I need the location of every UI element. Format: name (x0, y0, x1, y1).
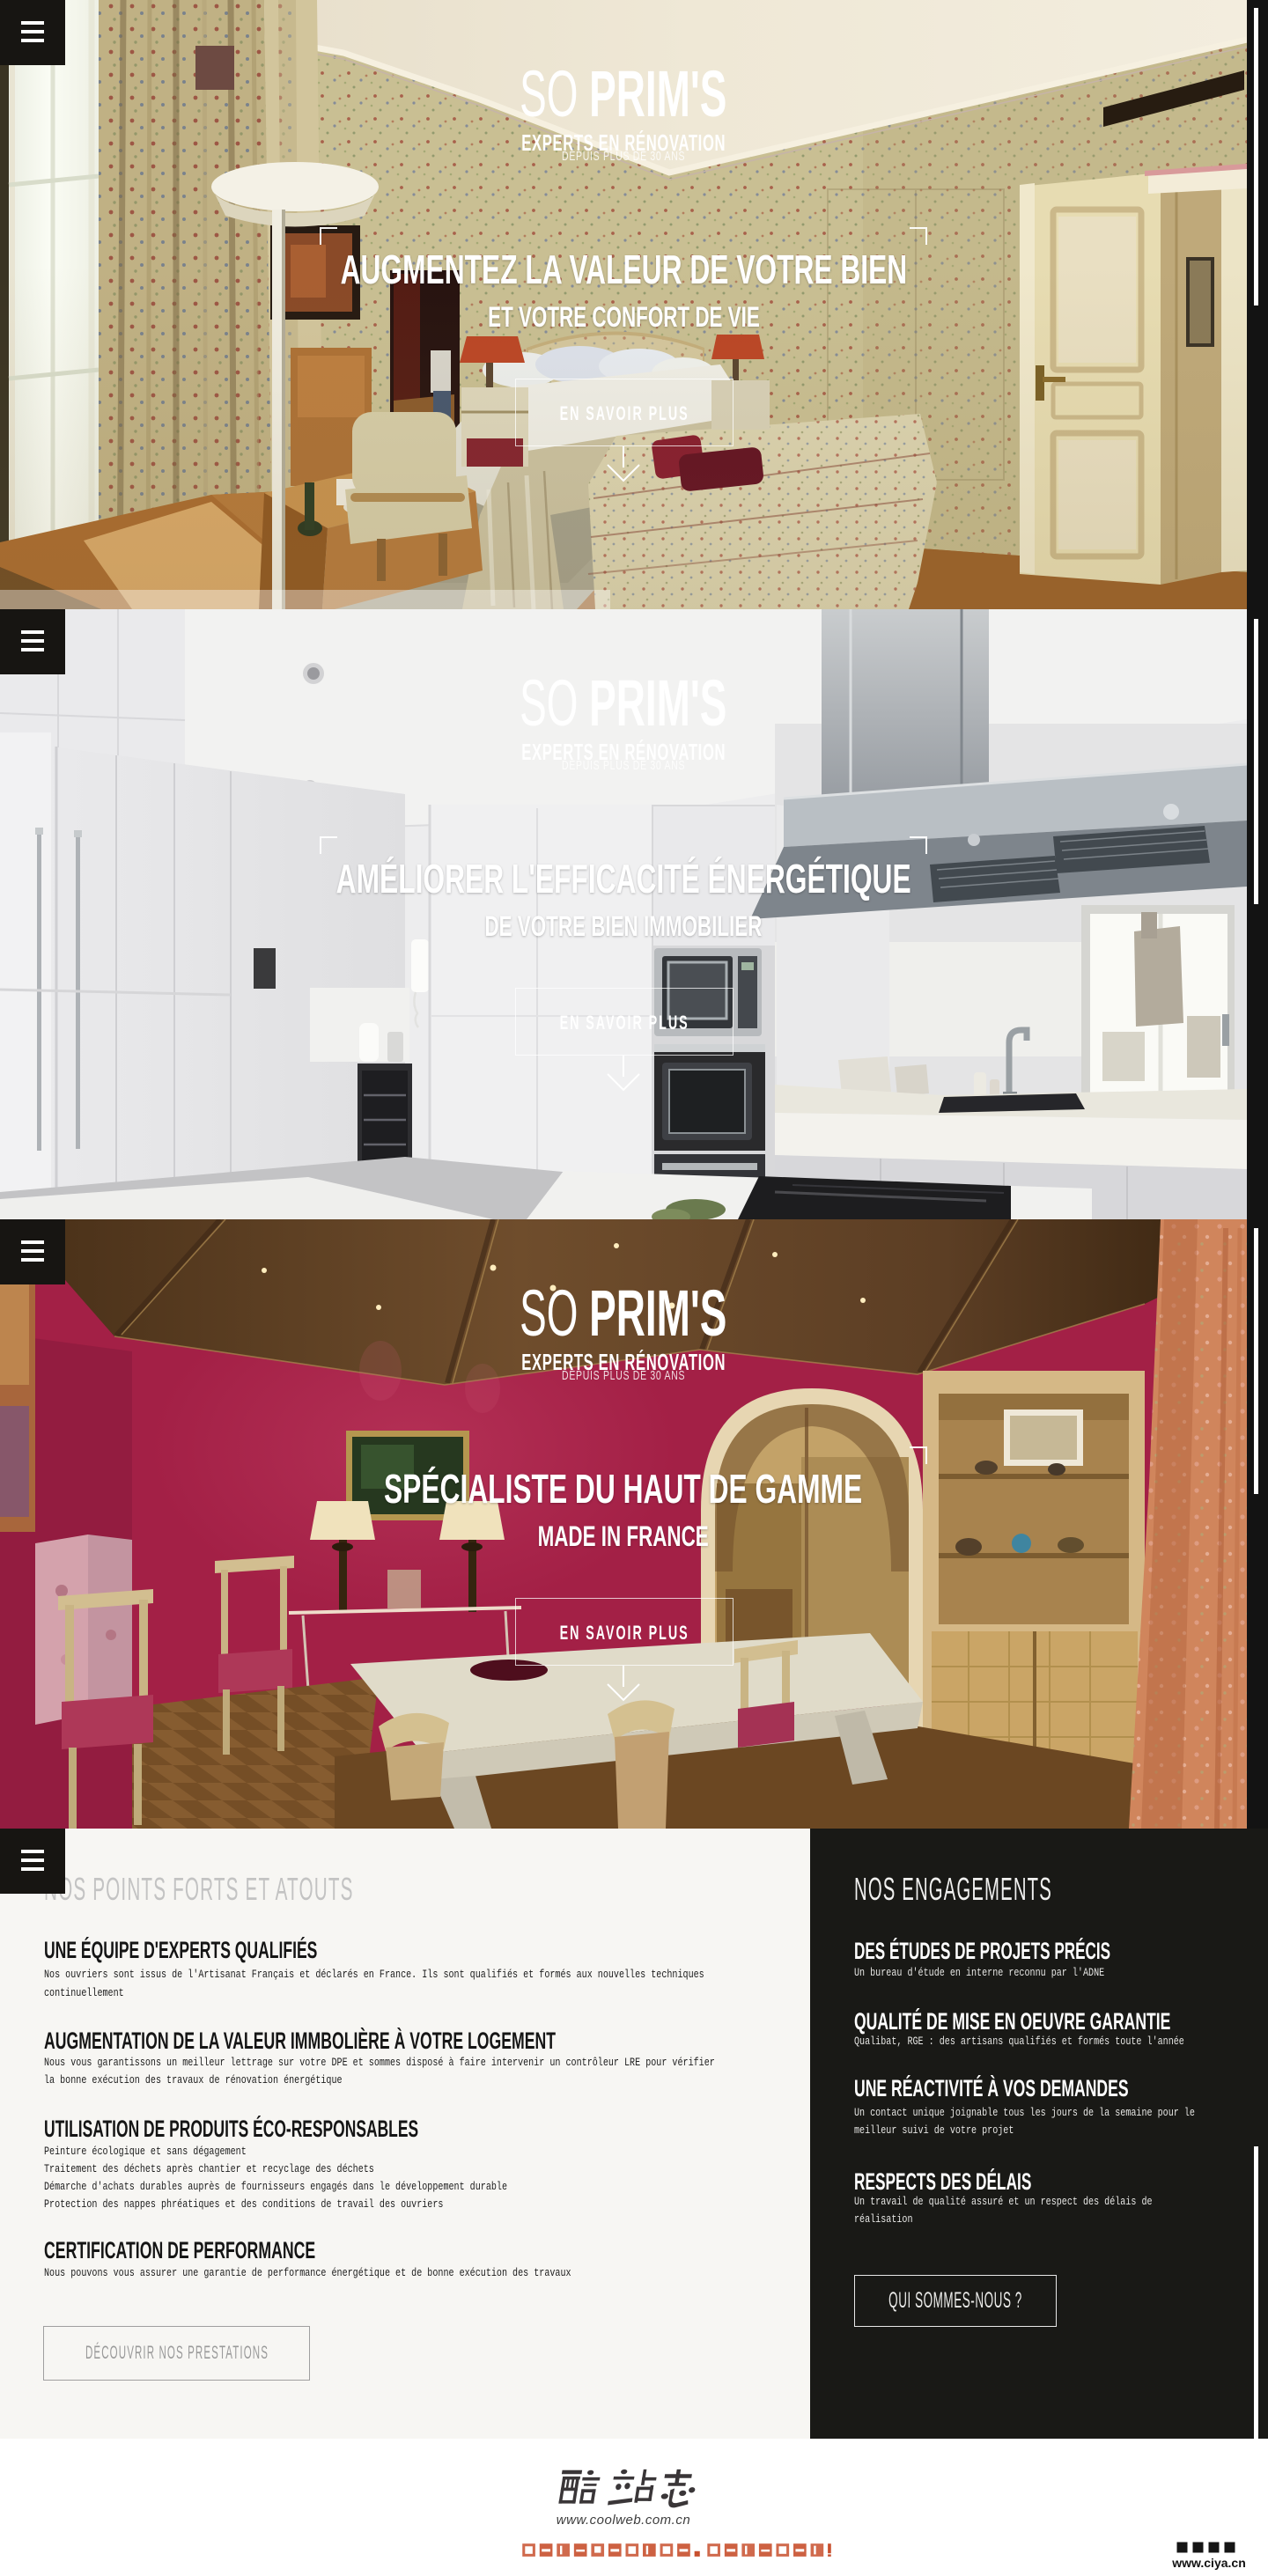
svg-text:www.ciya.cn: www.ciya.cn (1171, 2556, 1246, 2570)
